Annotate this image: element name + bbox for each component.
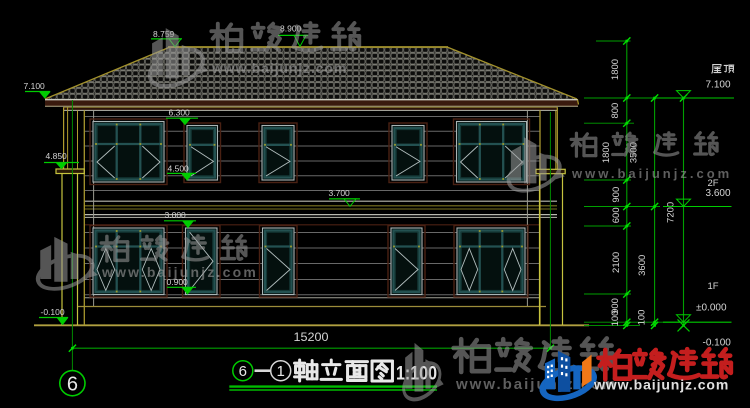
svg-text:-0.100: -0.100 bbox=[41, 307, 65, 317]
svg-text:-0.100: -0.100 bbox=[703, 338, 732, 349]
svg-text:800: 800 bbox=[610, 103, 621, 119]
svg-text:15200: 15200 bbox=[294, 330, 329, 344]
svg-text:www.baijunjz.com: www.baijunjz.com bbox=[211, 60, 347, 76]
svg-text:www.baijunjz.com: www.baijunjz.com bbox=[593, 377, 729, 393]
svg-text:4.850: 4.850 bbox=[46, 151, 68, 161]
svg-text:www.baijunjz.com: www.baijunjz.com bbox=[571, 166, 732, 181]
svg-text:6: 6 bbox=[67, 374, 78, 396]
svg-text:1: 1 bbox=[277, 363, 285, 380]
svg-text:2100: 2100 bbox=[611, 252, 622, 273]
svg-text:3.700: 3.700 bbox=[329, 188, 351, 198]
svg-text:100: 100 bbox=[637, 310, 648, 326]
svg-text:1800: 1800 bbox=[601, 142, 612, 163]
svg-text:100: 100 bbox=[610, 311, 621, 327]
svg-text:3.000: 3.000 bbox=[165, 210, 187, 220]
svg-text:1800: 1800 bbox=[610, 59, 621, 80]
svg-text:1F: 1F bbox=[708, 281, 719, 292]
svg-text:6.300: 6.300 bbox=[169, 107, 191, 117]
svg-text:7200: 7200 bbox=[665, 202, 676, 223]
svg-text:3.600: 3.600 bbox=[706, 188, 731, 199]
svg-text:www.baijunjz.com: www.baijunjz.com bbox=[101, 264, 258, 280]
svg-text:7.100: 7.100 bbox=[706, 80, 731, 91]
svg-text:600: 600 bbox=[611, 207, 622, 223]
svg-text:7.100: 7.100 bbox=[24, 81, 46, 91]
svg-text:6: 6 bbox=[239, 363, 247, 380]
svg-text:4.500: 4.500 bbox=[168, 163, 190, 173]
svg-text:3600: 3600 bbox=[637, 255, 648, 276]
svg-text:±0.000: ±0.000 bbox=[696, 303, 727, 314]
svg-text:900: 900 bbox=[611, 187, 622, 203]
